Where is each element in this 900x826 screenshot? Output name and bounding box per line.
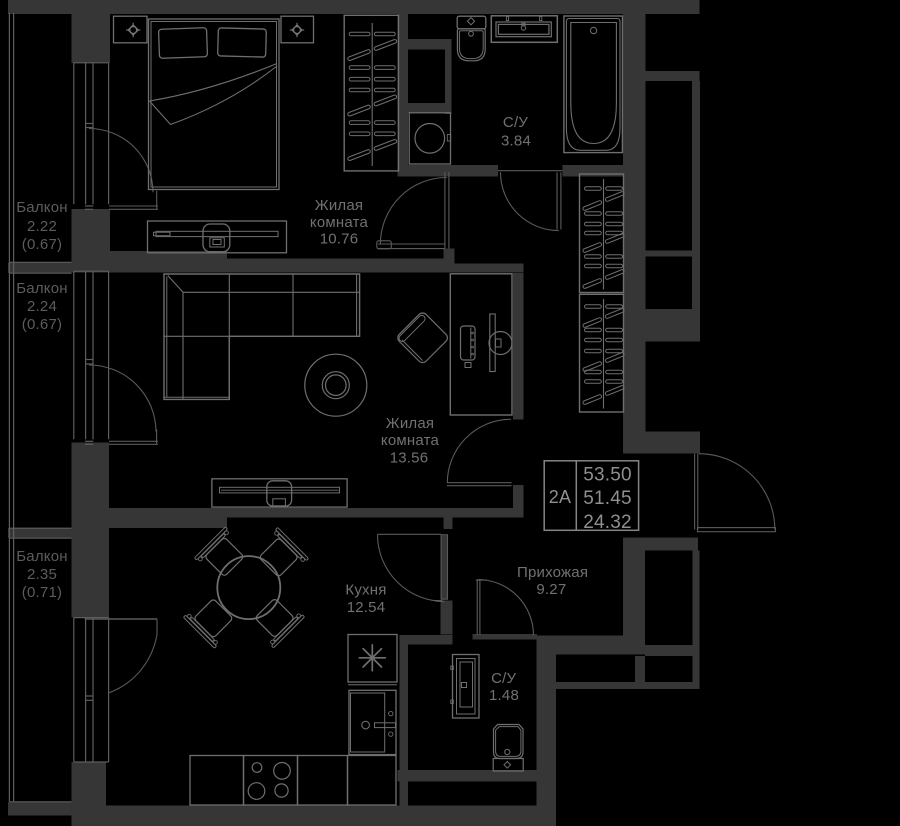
svg-text:12.54: 12.54 <box>347 599 386 616</box>
svg-text:комната: комната <box>381 432 440 449</box>
svg-text:9.27: 9.27 <box>536 581 566 598</box>
svg-text:(0.67): (0.67) <box>22 316 62 333</box>
svg-text:Балкон: Балкон <box>16 548 68 565</box>
svg-text:13.56: 13.56 <box>390 449 429 466</box>
svg-text:2.22: 2.22 <box>27 218 57 235</box>
svg-text:Балкон: Балкон <box>16 199 68 216</box>
svg-text:(0.67): (0.67) <box>22 236 62 253</box>
svg-text:24.32: 24.32 <box>583 512 632 533</box>
svg-text:2.35: 2.35 <box>27 566 57 583</box>
svg-text:С/У: С/У <box>503 114 528 131</box>
svg-text:2.24: 2.24 <box>27 298 57 315</box>
svg-text:(0.71): (0.71) <box>22 584 62 601</box>
svg-text:51.45: 51.45 <box>583 488 632 509</box>
svg-text:53.50: 53.50 <box>583 465 632 486</box>
svg-text:3.84: 3.84 <box>501 133 531 150</box>
svg-text:С/У: С/У <box>491 670 516 687</box>
svg-text:Жилая: Жилая <box>386 415 434 432</box>
svg-text:10.76: 10.76 <box>320 231 359 248</box>
svg-text:Кухня: Кухня <box>345 582 386 599</box>
svg-text:2А: 2А <box>549 487 571 507</box>
svg-text:1.48: 1.48 <box>489 687 519 704</box>
svg-text:Прихожая: Прихожая <box>517 564 588 581</box>
svg-text:Жилая: Жилая <box>315 197 363 214</box>
svg-text:комната: комната <box>310 214 369 231</box>
svg-text:Балкон: Балкон <box>16 280 68 297</box>
